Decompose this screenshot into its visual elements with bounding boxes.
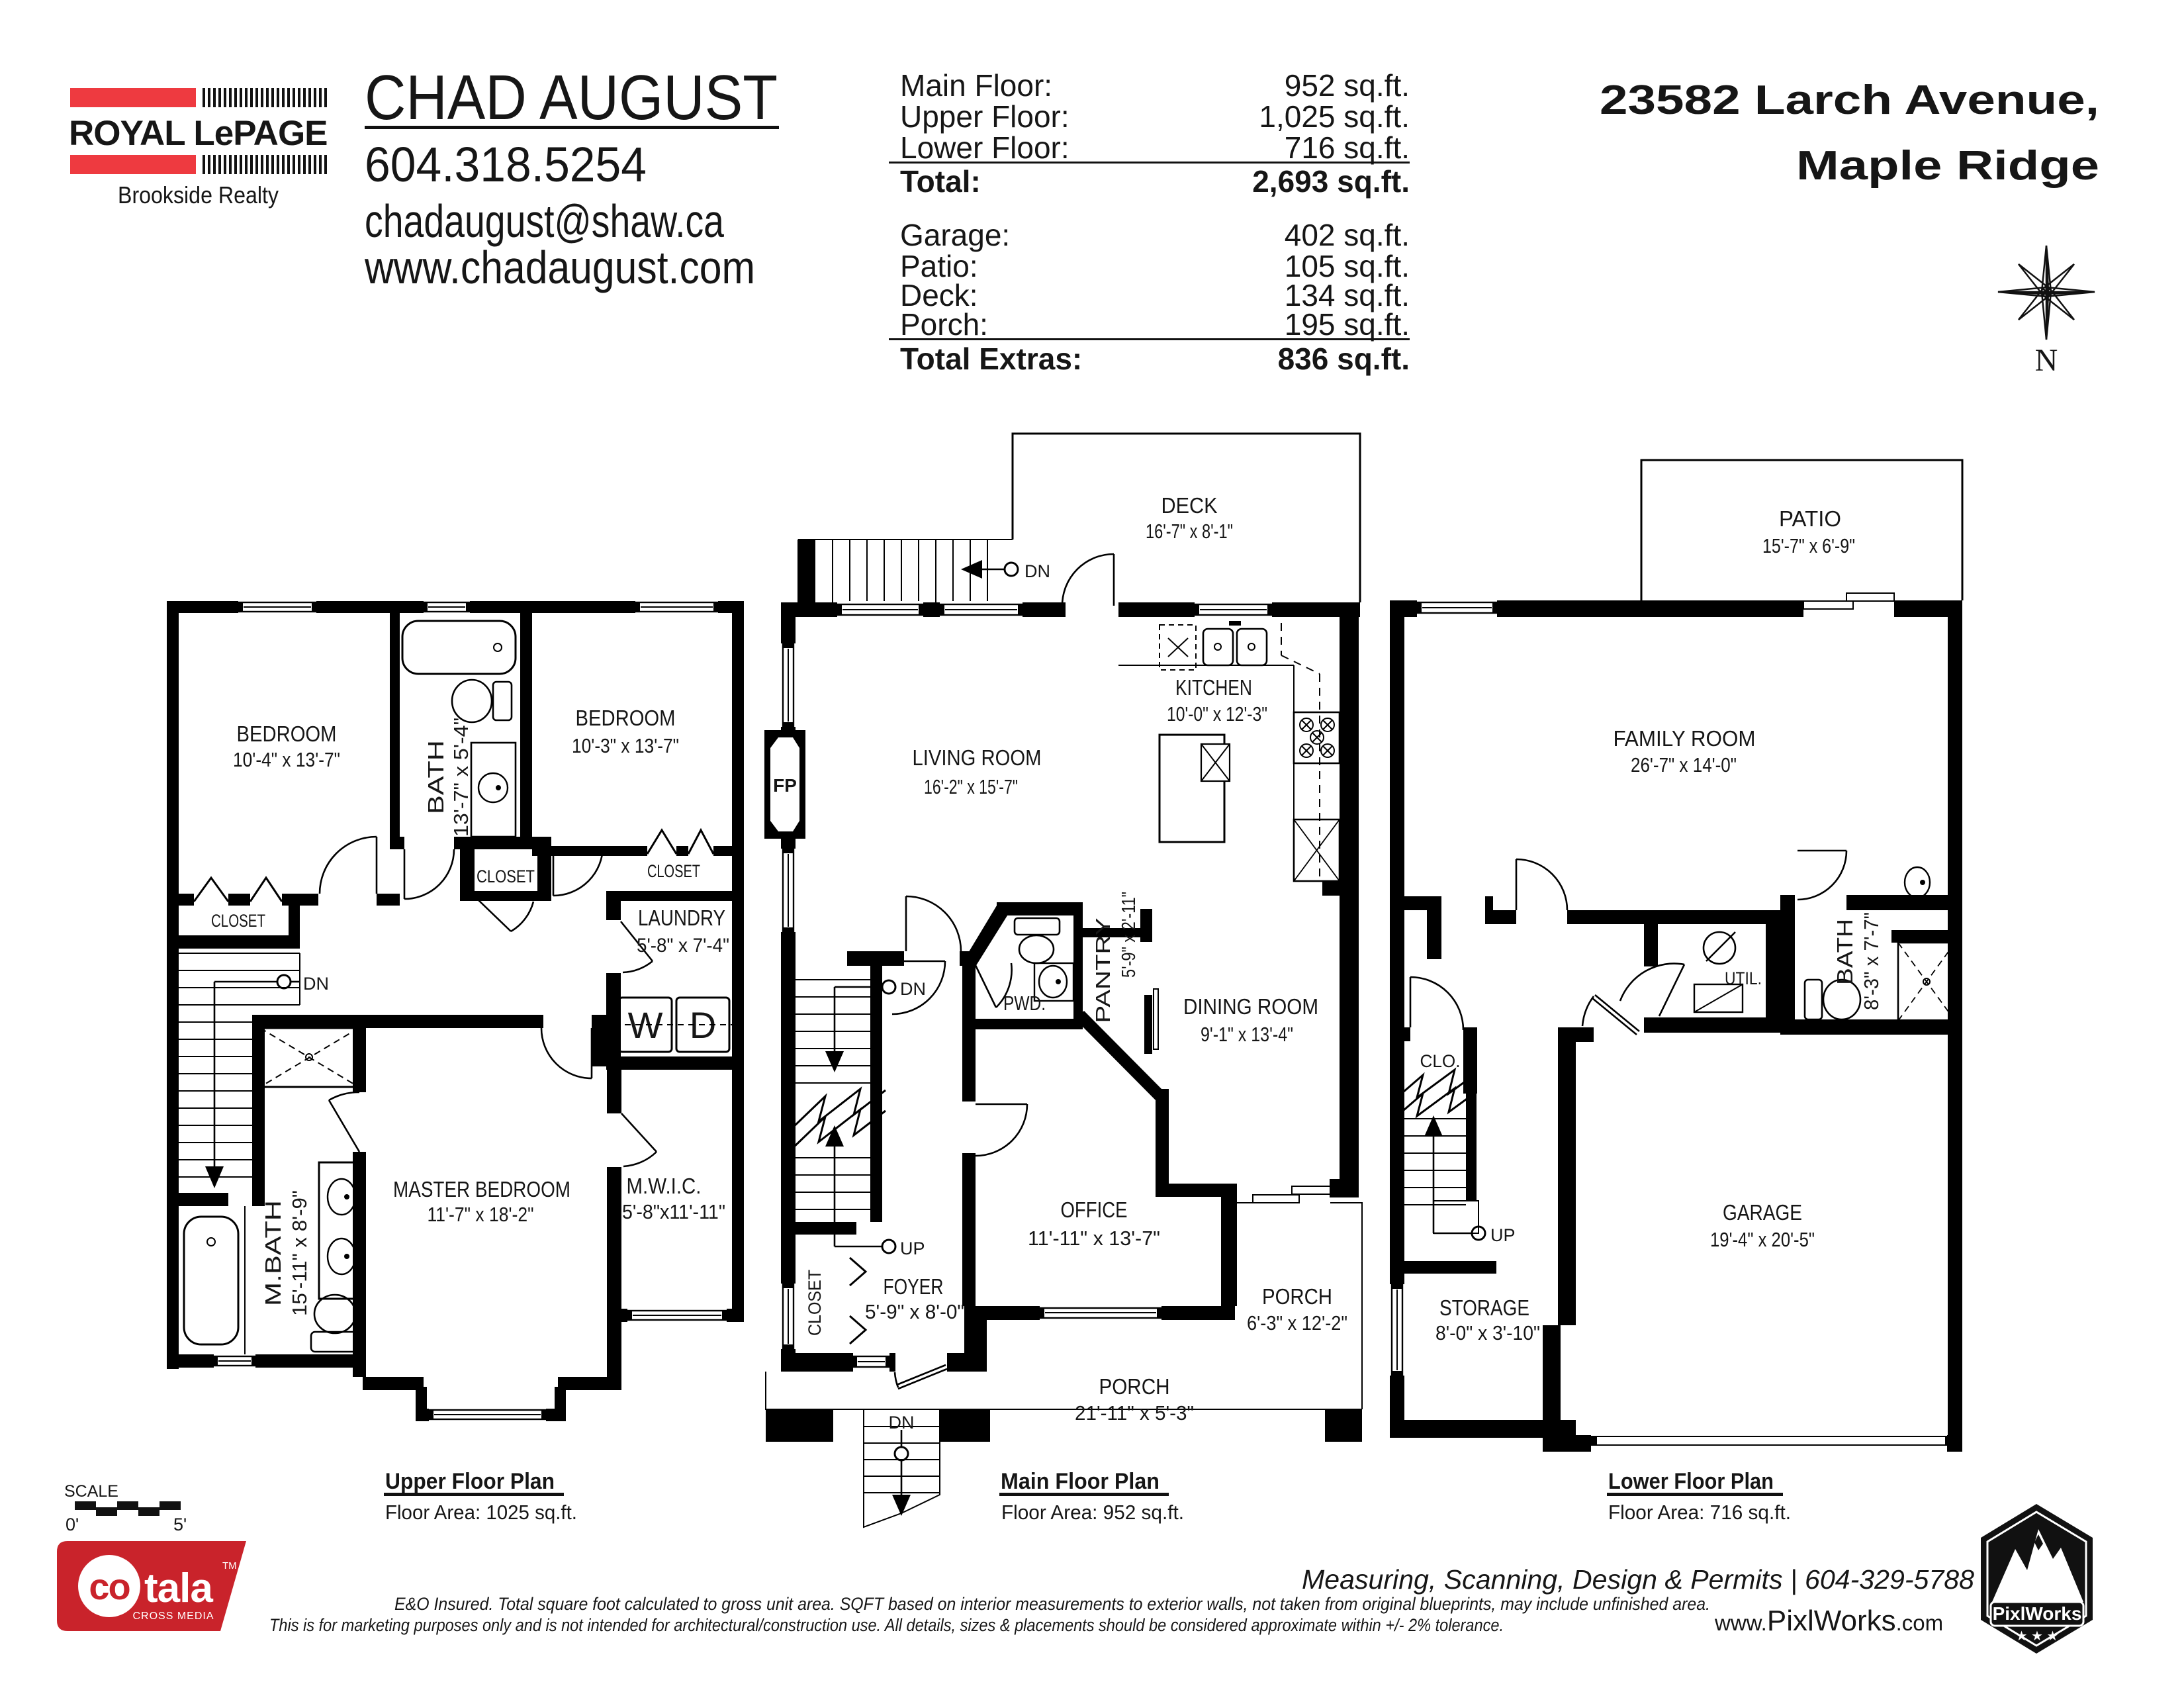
svg-text:CLOSET: CLOSET xyxy=(647,861,700,881)
svg-text:UP: UP xyxy=(900,1239,925,1258)
svg-text:8'-0" x 3'-10": 8'-0" x 3'-10" xyxy=(1435,1321,1540,1344)
svg-text:GARAGE: GARAGE xyxy=(1723,1200,1802,1225)
svg-text:6'-3" x 12'-2": 6'-3" x 12'-2" xyxy=(1247,1311,1347,1335)
svg-text:23582 Larch Avenue,: 23582 Larch Avenue, xyxy=(1600,77,2099,123)
svg-text:Lower Floor:: Lower Floor: xyxy=(900,130,1069,165)
svg-text:195 sq.ft.: 195 sq.ft. xyxy=(1285,307,1410,342)
svg-text:DN: DN xyxy=(303,974,329,994)
svg-text:Total Extras:: Total Extras: xyxy=(900,342,1082,376)
svg-text:PWD.: PWD. xyxy=(1003,992,1046,1015)
svg-text:tala: tala xyxy=(144,1566,213,1611)
svg-text:Total:: Total: xyxy=(900,164,981,199)
svg-text:ROYAL LePAGE: ROYAL LePAGE xyxy=(69,114,328,153)
svg-text:952 sq.ft.: 952 sq.ft. xyxy=(1285,68,1410,103)
svg-text:604.318.5254: 604.318.5254 xyxy=(365,137,647,192)
svg-text:Garage:: Garage: xyxy=(900,218,1010,252)
svg-text:★ ★ ★: ★ ★ ★ xyxy=(2016,1629,2059,1644)
svg-text:www.chadaugust.com: www.chadaugust.com xyxy=(364,242,755,293)
svg-text:Floor Area: 952 sq.ft.: Floor Area: 952 sq.ft. xyxy=(1001,1501,1184,1524)
svg-text:0': 0' xyxy=(66,1515,79,1534)
svg-text:Main Floor:: Main Floor: xyxy=(900,68,1052,103)
svg-text:BEDROOM: BEDROOM xyxy=(576,706,676,730)
svg-text:KITCHEN: KITCHEN xyxy=(1175,675,1252,700)
svg-text:FOYER: FOYER xyxy=(884,1274,944,1299)
svg-text:chadaugust@shaw.ca: chadaugust@shaw.ca xyxy=(365,195,724,247)
svg-text:1,025 sq.ft.: 1,025 sq.ft. xyxy=(1259,99,1410,134)
svg-text:15'-7" x 6'-9": 15'-7" x 6'-9" xyxy=(1762,534,1855,557)
svg-text:MASTER BEDROOM: MASTER BEDROOM xyxy=(393,1177,570,1201)
svg-text:DECK: DECK xyxy=(1161,493,1218,518)
svg-text:PATIO: PATIO xyxy=(1779,506,1841,531)
svg-text:Maple Ridge: Maple Ridge xyxy=(1796,143,2099,189)
svg-text:836 sq.ft.: 836 sq.ft. xyxy=(1278,342,1410,376)
svg-text:CROSS MEDIA: CROSS MEDIA xyxy=(132,1611,214,1622)
svg-text:CHAD AUGUST: CHAD AUGUST xyxy=(365,62,778,133)
svg-text:M.BATH: M.BATH xyxy=(261,1200,285,1306)
svg-text:26'-7" x 14'-0": 26'-7" x 14'-0" xyxy=(1631,753,1737,776)
svg-text:5': 5' xyxy=(173,1515,187,1534)
svg-text:SCALE: SCALE xyxy=(64,1482,118,1501)
svg-text:DN: DN xyxy=(889,1413,915,1432)
svg-text:5'-8"x11'-11": 5'-8"x11'-11" xyxy=(622,1200,725,1223)
svg-text:OFFICE: OFFICE xyxy=(1061,1197,1128,1222)
svg-text:11'-7" x 18'-2": 11'-7" x 18'-2" xyxy=(428,1203,534,1226)
svg-text:DN: DN xyxy=(900,979,926,999)
svg-text:PORCH: PORCH xyxy=(1099,1374,1170,1399)
svg-text:Floor Area: 1025 sq.ft.: Floor Area: 1025 sq.ft. xyxy=(385,1501,577,1524)
svg-text:Porch:: Porch: xyxy=(900,307,988,342)
svg-text:UTIL.: UTIL. xyxy=(1725,968,1762,988)
svg-text:5'-9" x 8'-0": 5'-9" x 8'-0" xyxy=(865,1300,964,1323)
svg-text:BATH: BATH xyxy=(424,740,448,814)
svg-text:19'-4" x 20'-5": 19'-4" x 20'-5" xyxy=(1710,1228,1815,1251)
svg-text:716 sq.ft.: 716 sq.ft. xyxy=(1285,130,1410,165)
svg-text:PORCH: PORCH xyxy=(1262,1284,1332,1309)
svg-text:5'-9" x 2'-11": 5'-9" x 2'-11" xyxy=(1118,892,1140,978)
svg-text:PixlWorks: PixlWorks xyxy=(1993,1603,2082,1624)
svg-text:STORAGE: STORAGE xyxy=(1439,1295,1529,1320)
svg-text:DN: DN xyxy=(1024,561,1050,581)
svg-text:M.W.I.C.: M.W.I.C. xyxy=(627,1174,702,1198)
svg-text:16'-7" x 8'-1": 16'-7" x 8'-1" xyxy=(1146,520,1233,543)
svg-text:16'-2" x 15'-7": 16'-2" x 15'-7" xyxy=(924,775,1018,798)
svg-text:CLOSET: CLOSET xyxy=(477,867,535,886)
svg-text:BEDROOM: BEDROOM xyxy=(237,722,337,746)
svg-text:PANTRY: PANTRY xyxy=(1091,918,1115,1023)
svg-text:N: N xyxy=(2035,343,2058,378)
svg-text:9'-1" x 13'-4": 9'-1" x 13'-4" xyxy=(1201,1023,1293,1046)
svg-text:FAMILY ROOM: FAMILY ROOM xyxy=(1614,726,1756,751)
svg-text:11'-11" x 13'-7": 11'-11" x 13'-7" xyxy=(1028,1227,1160,1250)
svg-text:13'-7" x 5'-4": 13'-7" x 5'-4" xyxy=(449,718,473,837)
svg-text:co: co xyxy=(89,1566,130,1607)
svg-text:15'-11" x 8'-9": 15'-11" x 8'-9" xyxy=(288,1190,311,1316)
svg-text:5'-8" x 7'-4": 5'-8" x 7'-4" xyxy=(637,935,729,957)
svg-text:BATH: BATH xyxy=(1833,919,1857,985)
svg-text:Lower Floor Plan: Lower Floor Plan xyxy=(1608,1469,1774,1494)
svg-text:2,693 sq.ft.: 2,693 sq.ft. xyxy=(1252,164,1410,199)
svg-text:CLO.: CLO. xyxy=(1420,1051,1461,1071)
svg-text:FP: FP xyxy=(773,775,797,796)
svg-text:Measuring, Scanning, Design &: Measuring, Scanning, Design & Permits | … xyxy=(1302,1564,1974,1595)
svg-text:Upper Floor Plan: Upper Floor Plan xyxy=(385,1469,555,1494)
svg-text:LIVING ROOM: LIVING ROOM xyxy=(913,745,1042,770)
svg-text:21'-11" x 5'-3": 21'-11" x 5'-3" xyxy=(1075,1401,1194,1425)
svg-text:Main Floor Plan: Main Floor Plan xyxy=(1001,1469,1160,1494)
svg-text:Floor Area: 716 sq.ft.: Floor Area: 716 sq.ft. xyxy=(1608,1501,1791,1524)
svg-text:CLOSET: CLOSET xyxy=(805,1270,825,1336)
svg-text:TM: TM xyxy=(222,1560,237,1571)
svg-text:CLOSET: CLOSET xyxy=(211,911,265,931)
svg-text:UP: UP xyxy=(1490,1225,1516,1245)
svg-text:Upper Floor:: Upper Floor: xyxy=(900,99,1069,134)
svg-text:LAUNDRY: LAUNDRY xyxy=(638,906,725,930)
svg-text:402 sq.ft.: 402 sq.ft. xyxy=(1285,218,1410,252)
svg-text:E&O Insured. Total square foo: E&O Insured. Total square foot calculate… xyxy=(394,1594,1710,1614)
svg-text:DINING ROOM: DINING ROOM xyxy=(1183,994,1318,1019)
svg-text:8'-3" x 7'-7": 8'-3" x 7'-7" xyxy=(1860,912,1883,1010)
svg-text:This is for marketing purposes: This is for marketing purposes only and … xyxy=(269,1615,1504,1635)
svg-text:10'-4" x 13'-7": 10'-4" x 13'-7" xyxy=(233,748,340,771)
svg-text:10'-0" x 12'-3": 10'-0" x 12'-3" xyxy=(1167,702,1267,726)
svg-text:10'-3" x 13'-7": 10'-3" x 13'-7" xyxy=(572,734,679,757)
svg-text:Brookside Realty: Brookside Realty xyxy=(118,181,279,209)
